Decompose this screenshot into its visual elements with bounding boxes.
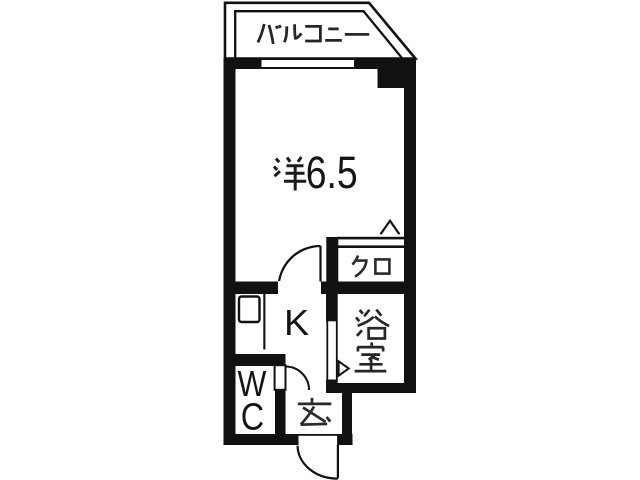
svg-text:C: C: [241, 396, 264, 438]
svg-text:6.5: 6.5: [306, 148, 358, 198]
svg-text:K: K: [284, 303, 310, 343]
